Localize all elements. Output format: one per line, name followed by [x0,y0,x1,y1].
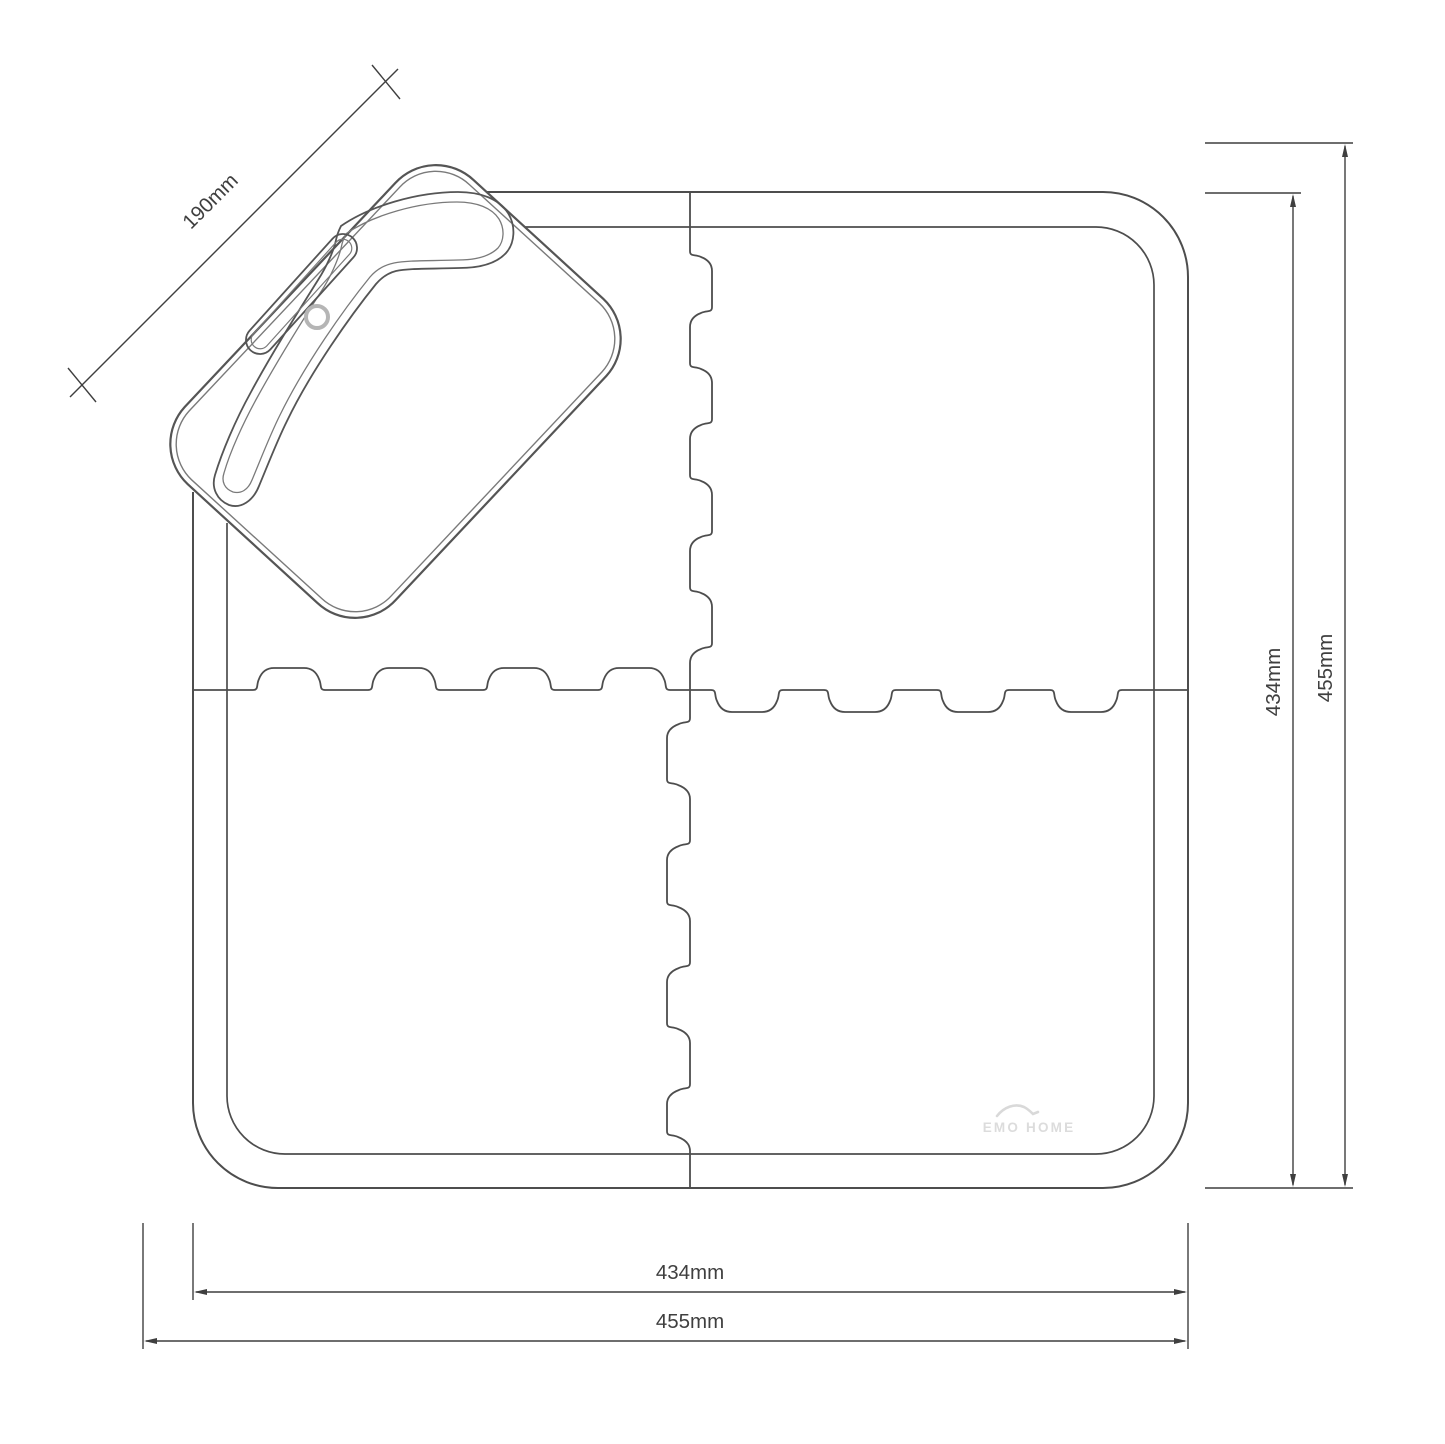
arrow-up-icon [1290,194,1296,207]
handle-slot-inner-line [251,239,352,349]
dim-label-pad-width: 190mm [178,169,243,234]
puzzle-mat [193,192,1188,1188]
dim-label-bottom-inner: 434mm [656,1261,724,1284]
brand-logo: EMO HOME [983,1105,1076,1135]
dim-label-right-inner: 434mm [1262,648,1285,716]
roof-icon [997,1105,1038,1116]
dim-pad-tick-end [372,65,400,99]
dim-pad-tick-start [68,368,96,402]
technical-drawing: 190mm 434mm 455mm 434mm 455mm EMO HOME [0,0,1445,1444]
brand-logo-text: EMO HOME [983,1120,1076,1135]
pad-hole [306,306,328,328]
arrow-right-icon [1174,1289,1187,1295]
kneeling-pad [170,165,620,618]
arrow-left-icon [144,1338,157,1344]
technical-drawing-page: 190mm 434mm 455mm 434mm 455mm EMO HOME [0,0,1445,1444]
dim-pad-width [68,65,400,402]
pad-outer-outline [170,165,620,618]
dim-label-bottom-outer: 455mm [656,1310,724,1333]
pad-inner-outline [176,171,615,611]
arrow-up-icon [1342,144,1348,157]
arrow-left-icon [194,1289,207,1295]
arrow-down-icon [1290,1174,1296,1187]
arrow-down-icon [1342,1174,1348,1187]
arrow-right-icon [1174,1338,1187,1344]
dim-label-right-outer: 455mm [1314,634,1337,702]
